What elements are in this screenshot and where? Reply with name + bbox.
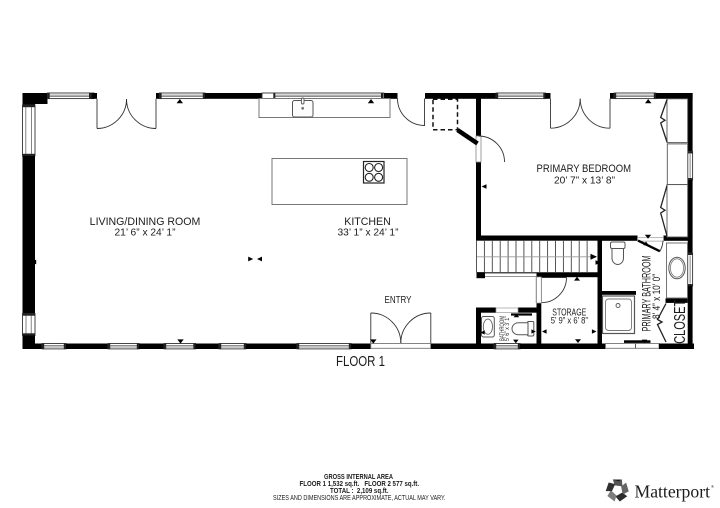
svg-text:21’ 6” x 24’ 1”: 21’ 6” x 24’ 1” (115, 228, 177, 239)
svg-text:LIVING/DINING ROOM: LIVING/DINING ROOM (90, 216, 201, 228)
svg-text:5’ 6” x 3’ 1”: 5’ 6” x 3’ 1” (504, 316, 511, 341)
svg-text:33’ 1” x 24’ 1”: 33’ 1” x 24’ 1” (338, 228, 400, 239)
svg-text:CLOSET: CLOSET (672, 300, 689, 344)
svg-text:KITCHEN: KITCHEN (344, 216, 391, 228)
svg-text:PRIMARY BEDROOM: PRIMARY BEDROOM (537, 163, 632, 175)
svg-text:SIZES AND DIMENSIONS ARE APPRO: SIZES AND DIMENSIONS ARE APPROXIMATE, AC… (273, 495, 446, 502)
svg-text:TOTAL : 2,109 sq.ft.: TOTAL : 2,109 sq.ft. (330, 486, 389, 495)
svg-text:8’ 4” x 10’ 0”: 8’ 4” x 10’ 0” (651, 274, 663, 319)
svg-text:®: ® (711, 484, 715, 489)
svg-text:FLOOR 1: FLOOR 1 (336, 353, 385, 370)
svg-text:20’ 7” x 13’ 8”: 20’ 7” x 13’ 8” (554, 176, 616, 187)
svg-text:ENTRY: ENTRY (385, 295, 412, 306)
svg-text:5’ 9” x 6’ 8”: 5’ 9” x 6’ 8” (551, 316, 588, 327)
svg-text:Matterport: Matterport (635, 481, 711, 501)
